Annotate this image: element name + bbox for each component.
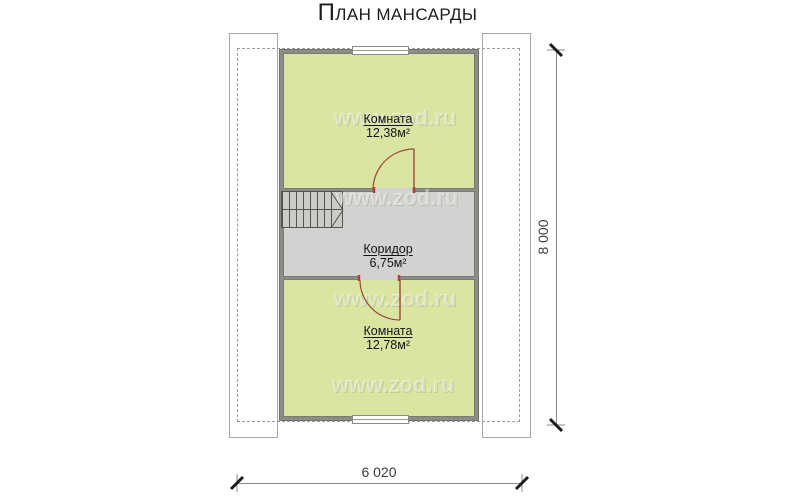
room-top-name: Комната [308,112,468,126]
dimension-line-horizontal [237,483,522,484]
room-top-area: 12,38м² [308,126,468,140]
stair-midline [282,209,342,210]
corridor-name: Коридор [308,242,468,256]
room-bottom-area: 12,78м² [308,338,468,352]
stairs [281,191,343,228]
room-top-label: Комната 12,38м² [308,112,468,140]
corridor-area: 6,75м² [308,256,468,270]
room-bottom-label: Комната 12,78м² [308,324,468,352]
dimension-value-horizontal: 6 020 [339,464,419,480]
room-bottom-name: Комната [308,324,468,338]
door-opening-top [373,188,415,192]
window-bottom [352,415,409,424]
plan-body: www.zod.ru www.zod.ru www.zod.ru www.zod… [280,50,478,420]
dimension-line-vertical [556,50,557,425]
floor-plan-canvas: План мансарды www.zod.ru www.zod.ru www.… [0,0,795,496]
dimension-value-vertical: 8 000 [535,207,551,267]
corridor-label: Коридор 6,75м² [308,242,468,270]
door-opening-bottom [358,276,400,280]
window-top [352,46,409,55]
plan-title: План мансарды [0,0,795,28]
